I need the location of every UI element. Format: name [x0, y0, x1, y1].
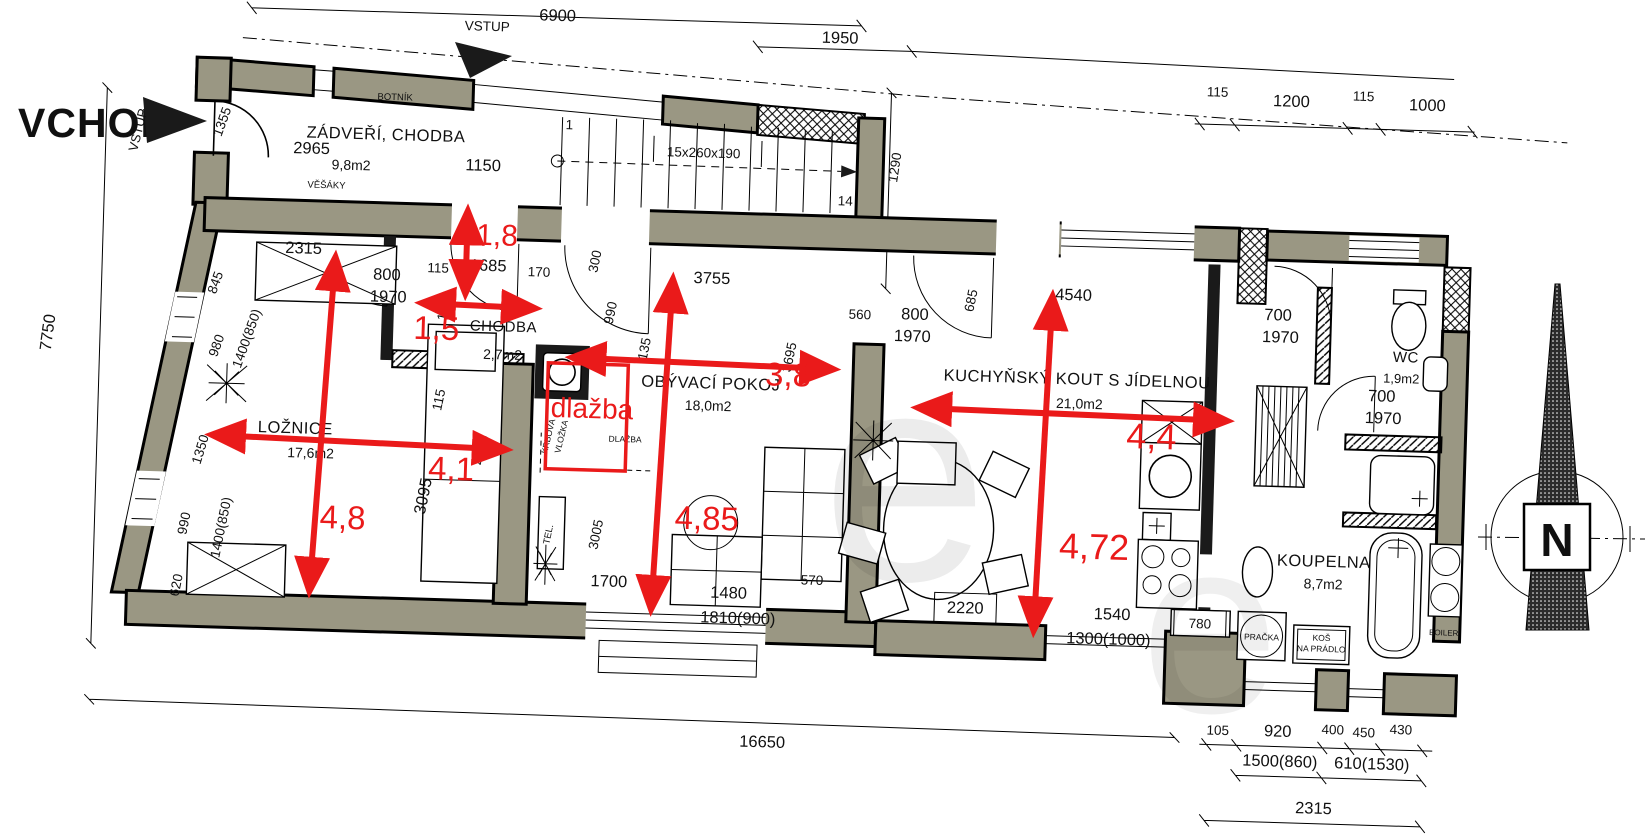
red-arrow-4-85: [651, 280, 673, 608]
red-label-4-8: 4,8: [319, 498, 366, 536]
dim-700b: 700: [1368, 387, 1396, 406]
north-letter: N: [1540, 514, 1573, 566]
dim-570: 570: [801, 572, 824, 588]
red-label-1-5: 1,5: [413, 309, 460, 347]
right-crosshatch-col: [1443, 267, 1471, 332]
dim-stair-width: 1950: [821, 29, 858, 48]
west-facade-wall: [111, 200, 223, 595]
boiler-label: BOILER: [1429, 628, 1459, 638]
wc-west-hatch-wall: [1315, 288, 1332, 384]
dim-1810-900: 1810(900): [700, 608, 776, 628]
obyvaci-area: 18,0m2: [685, 397, 732, 414]
dlazba-label: dlažba: [550, 392, 634, 425]
left-dim-line: [86, 82, 113, 648]
red-label-4-1: 4,1: [428, 449, 475, 487]
stair-last: 14: [838, 193, 854, 208]
dim-1700: 1700: [590, 572, 627, 591]
dim-tr-1000: 1000: [1409, 96, 1446, 115]
north-compass: N: [1478, 284, 1645, 630]
dim-610-1530: 610(1530): [1334, 754, 1410, 774]
dim-1400-850a: 1400(850): [229, 307, 264, 370]
bedroom-furniture: [186, 240, 506, 603]
dim-3005: 3005: [585, 518, 606, 550]
dim-total: 16650: [739, 733, 785, 752]
red-label-4-85: 4,85: [674, 499, 739, 538]
entry-east-wall: [856, 118, 885, 221]
dim-2315: 2315: [285, 239, 322, 258]
dim-990: 990: [174, 511, 193, 536]
dim-3755: 3755: [693, 269, 730, 288]
dim-980: 980: [206, 332, 228, 358]
dim-1150: 1150: [465, 156, 501, 175]
dim-tr-115a: 115: [1207, 84, 1229, 100]
watermark-letter-2: e: [1140, 486, 1279, 765]
obyvaci-name: OBÝVACÍ POKOJ: [641, 372, 781, 395]
watermark-letter: e: [822, 308, 989, 644]
kos-label-2: NA PRÁDLO: [1297, 643, 1346, 654]
stair-first: 1: [565, 117, 573, 132]
vstup-arrow-icon: [455, 42, 512, 78]
bottom-wall-right: [1383, 674, 1456, 716]
dim-430: 430: [1389, 722, 1412, 738]
dim-1970c: 1970: [1262, 328, 1299, 347]
dim-1350: 1350: [189, 433, 212, 466]
dim-left-height: 7750: [37, 313, 60, 352]
wc-name: WC: [1393, 349, 1419, 367]
dim-1480: 1480: [710, 584, 747, 603]
living-door-gap: [561, 206, 650, 246]
top-crosshatch-col1: [1237, 228, 1267, 304]
dim-990b: 990: [601, 300, 620, 325]
dim-1300-1000: 1300(1000): [1066, 629, 1151, 649]
top-dim-ticks: [246, 2, 918, 58]
chodba-name: CHODBA: [470, 317, 538, 336]
koupelna-name: KOUPELNA: [1277, 551, 1371, 572]
red-arrow-1-8: [465, 212, 467, 292]
loznice-area: 17,6m2: [287, 444, 334, 461]
red-label-4-72: 4,72: [1059, 525, 1130, 568]
dim-800a: 800: [373, 266, 401, 285]
dim-4540: 4540: [1055, 286, 1092, 305]
dim-1970a: 1970: [370, 287, 407, 306]
wc-area: 1,9m2: [1383, 371, 1420, 387]
dim-450: 450: [1352, 725, 1375, 741]
vesaky-label: VĚŠÁKY: [307, 180, 346, 192]
entry-crosshatch-wall: [757, 105, 865, 144]
kuchyn-area: 21,0m2: [1056, 395, 1103, 412]
kos-label-1: KOŠ: [1312, 633, 1331, 644]
top-right-dim-line: [1195, 118, 1478, 138]
dim-300: 300: [585, 249, 604, 274]
floorplan-page: 6900 1950 1290 115 1200 115 1000 7750 13…: [0, 0, 1646, 840]
dim-1970d: 1970: [1364, 409, 1401, 428]
dim-entry-door: 1355: [210, 105, 234, 138]
entry-north-wall-3: [662, 96, 758, 133]
total-dim-line: [84, 694, 1180, 743]
dim-tr-1200: 1200: [1273, 92, 1310, 111]
vstup-top-label: VSTUP: [465, 18, 510, 34]
plan-group: 6900 1950 1290 115 1200 115 1000 7750 13…: [24, 0, 1571, 837]
bath-hatch-wall1: [1345, 434, 1441, 452]
koupelna-area: 8,7m2: [1303, 575, 1343, 592]
red-label-3-8: 3,8: [765, 355, 812, 393]
red-arrow-4-72: [1034, 297, 1053, 629]
stairs-label: 15x260x190: [667, 144, 741, 161]
dim-1685: 1685: [470, 256, 507, 275]
entry-west-wall-top: [196, 57, 231, 101]
zadveri-area: 9,8m2: [331, 156, 371, 173]
dim-170: 170: [528, 264, 551, 280]
entrance-arrow-icon: [143, 97, 207, 143]
exterior-step-line: [599, 656, 757, 661]
north-needle-icon: [1526, 284, 1589, 630]
bottom-wall-mid: [1315, 670, 1348, 711]
dim-tr-115b: 115: [1353, 89, 1375, 105]
red-label-4-4: 4,4: [1126, 415, 1177, 457]
dim-115a: 115: [427, 260, 449, 276]
chodba-area: 2,7m2: [483, 346, 523, 363]
zadveri-name: ZÁDVEŘÍ, CHODBA: [306, 123, 465, 147]
kitchen-door-gap: [996, 219, 1060, 258]
dim-400: 400: [1321, 722, 1344, 738]
red-label-1-8: 1,8: [476, 219, 519, 253]
dim-top-width: 6900: [539, 6, 576, 25]
dim-700a: 700: [1264, 306, 1292, 325]
pantry-shelving: [1254, 386, 1307, 487]
dim-1540: 1540: [1094, 605, 1131, 624]
dim-2315b: 2315: [1295, 799, 1332, 818]
dim-right-offset: 1290: [885, 151, 904, 183]
botnik-label: BOTNÍK: [377, 92, 413, 104]
floorplan-drawing: 6900 1950 1290 115 1200 115 1000 7750 13…: [0, 0, 1646, 840]
